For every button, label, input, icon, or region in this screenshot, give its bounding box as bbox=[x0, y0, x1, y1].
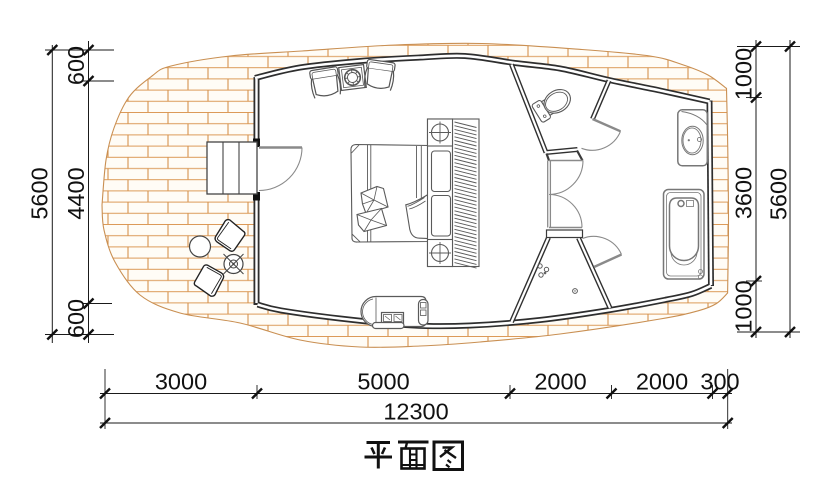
svg-text:1000: 1000 bbox=[731, 280, 757, 332]
svg-text:300: 300 bbox=[700, 369, 739, 395]
svg-text:12300: 12300 bbox=[383, 399, 448, 425]
svg-text:600: 600 bbox=[63, 46, 89, 85]
svg-text:600: 600 bbox=[63, 299, 89, 338]
svg-text:1000: 1000 bbox=[731, 48, 757, 100]
svg-text:2000: 2000 bbox=[636, 369, 688, 395]
svg-text:3600: 3600 bbox=[731, 167, 757, 219]
svg-text:4400: 4400 bbox=[63, 167, 89, 219]
svg-text:2000: 2000 bbox=[534, 369, 586, 395]
svg-text:5000: 5000 bbox=[357, 369, 409, 395]
svg-text:5600: 5600 bbox=[766, 168, 792, 220]
svg-text:3000: 3000 bbox=[155, 369, 207, 395]
svg-text:5600: 5600 bbox=[27, 167, 53, 219]
